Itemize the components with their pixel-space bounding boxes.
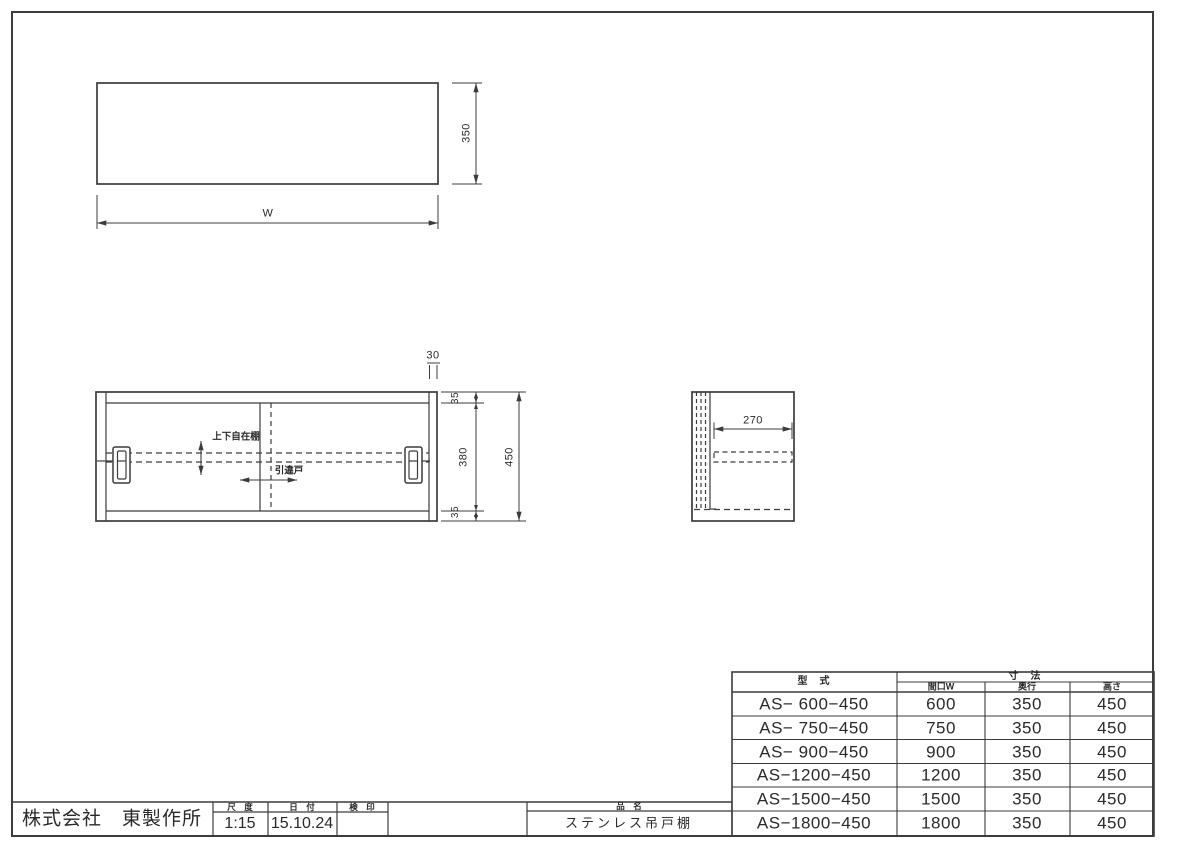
- top-frame-label: 35: [451, 392, 461, 404]
- spec-row-model: AS− 750−450: [759, 720, 868, 737]
- spec-col-dims-header: 寸 法: [1009, 672, 1042, 682]
- spec-row-model: AS−1800−450: [757, 815, 871, 832]
- spec-row-model: AS−1200−450: [757, 767, 871, 784]
- left-door-handle: [113, 447, 130, 483]
- shelf-depth-label: 270: [743, 416, 763, 427]
- spec-col-width-header: 間口W: [928, 683, 955, 692]
- sliding-door-annotation: 引違戸: [275, 466, 304, 476]
- spec-row-depth: 350: [1012, 815, 1042, 832]
- spec-row-model: AS−1500−450: [757, 791, 871, 808]
- spec-row-height: 450: [1097, 743, 1127, 760]
- spec-col-height-header: 高さ: [1103, 683, 1121, 692]
- spec-row-depth: 350: [1012, 767, 1042, 784]
- side-view: [692, 392, 794, 521]
- adjustable-shelf-annotation: 上下自在棚: [212, 432, 260, 442]
- spec-col-model-header: 型 式: [798, 677, 831, 687]
- date-label: 日 付: [289, 803, 315, 812]
- spec-row-width: 1500: [921, 791, 961, 808]
- scale-value: 1:15: [224, 816, 255, 832]
- spec-row-depth: 350: [1012, 696, 1042, 713]
- spec-row-model: AS− 600−450: [759, 696, 868, 713]
- spec-row-width: 1800: [921, 815, 961, 832]
- total-height-label: 450: [505, 447, 516, 467]
- stamp-label: 検 印: [349, 803, 375, 812]
- top-view-width-label: W: [263, 209, 274, 220]
- spec-row-width: 600: [926, 696, 956, 713]
- spec-row-width: 1200: [921, 767, 961, 784]
- spec-row-depth: 350: [1012, 720, 1042, 737]
- top-view-depth-label: 350: [462, 123, 473, 143]
- door-thickness-label: 30: [426, 351, 439, 362]
- bottom-frame-label: 35: [451, 506, 461, 518]
- top-view-dimensions: [97, 83, 482, 229]
- spec-row-height: 450: [1097, 696, 1127, 713]
- front-view-dimensions: [427, 363, 526, 521]
- drawing-sheet: 350 W 30 35 380 35 450 270 上下自在棚 引違戸 型 式…: [0, 0, 1200, 849]
- right-door-handle: [405, 447, 422, 483]
- spec-row-height: 450: [1097, 815, 1127, 832]
- sheet-border: [12, 12, 1153, 836]
- spec-row-model: AS− 900−450: [759, 743, 868, 760]
- company-name: 株式会社 東製作所: [22, 810, 202, 829]
- spec-row-width: 750: [926, 720, 956, 737]
- spec-row-width: 900: [926, 743, 956, 760]
- spec-row-height: 450: [1097, 767, 1127, 784]
- spec-row-height: 450: [1097, 791, 1127, 808]
- spec-row-height: 450: [1097, 720, 1127, 737]
- interior-height-label: 380: [459, 447, 470, 467]
- spec-row-depth: 350: [1012, 791, 1042, 808]
- top-view: [97, 83, 438, 184]
- spec-col-depth-header: 奥行: [1018, 683, 1036, 692]
- scale-label: 尺 度: [227, 803, 253, 812]
- front-view: [96, 392, 437, 521]
- product-name-label: 品 名: [616, 802, 642, 811]
- date-value: 15.10.24: [271, 816, 333, 832]
- spec-row-depth: 350: [1012, 743, 1042, 760]
- product-name-value: ステンレス吊戸棚: [565, 817, 693, 830]
